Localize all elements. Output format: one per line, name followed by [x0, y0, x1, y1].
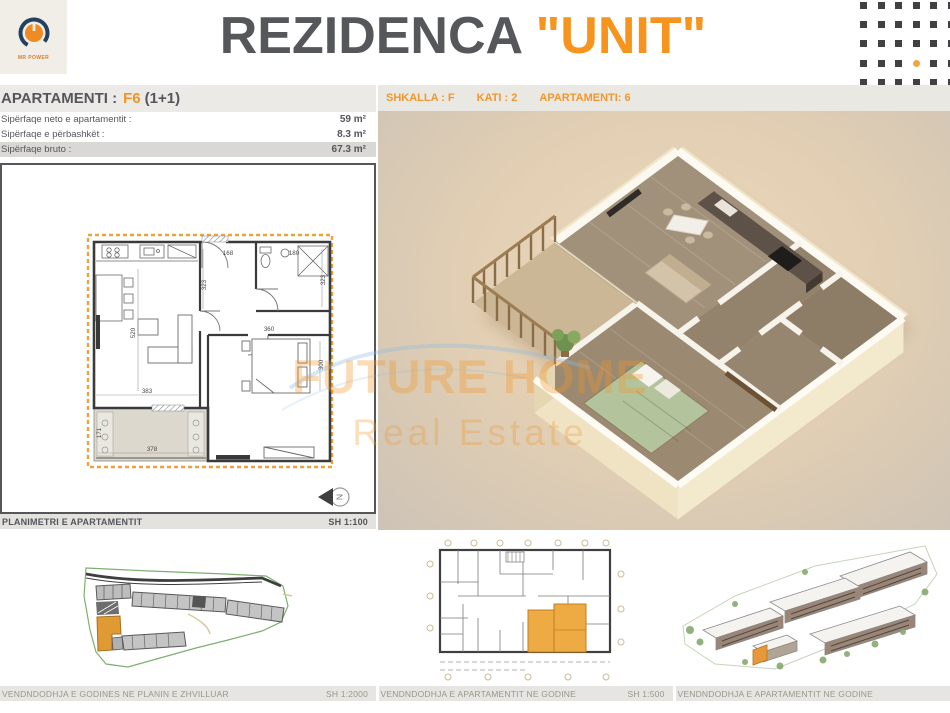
plan-caption-text: PLANIMETRI E APARTAMENTIT — [2, 517, 142, 527]
stat-label: Sipërfaqe bruto : — [1, 144, 71, 155]
dot — [895, 2, 902, 9]
dot — [860, 21, 867, 28]
dot — [930, 60, 937, 67]
kati-label: KATI : 2 — [477, 92, 518, 104]
complex-axonometric-drawing — [675, 534, 950, 686]
apartment-type: (1+1) — [145, 90, 180, 107]
apartamenti-label: APARTAMENTI: 6 — [539, 92, 630, 104]
building-plan-drawing — [378, 534, 672, 686]
dots-decoration — [860, 2, 950, 98]
stat-label: Sipërfaqe e përbashkët : — [1, 129, 105, 140]
title-accent: "UNIT" — [536, 7, 707, 65]
dot — [913, 2, 920, 9]
brochure-page: MR POWER REZIDENCA "UNIT" APARTAMENTI : … — [0, 0, 950, 713]
site-plan-drawing — [0, 534, 376, 686]
highlighted-unit — [753, 645, 767, 665]
caption-text: VENDNDODHJA E GODINES NE PLANIN E ZHVILL… — [2, 689, 229, 699]
dining-set — [96, 275, 133, 321]
svg-text:323: 323 — [201, 279, 208, 290]
living-furniture — [96, 315, 192, 363]
stat-row-perbashket: Sipërfaqe e përbashkët : 8.3 m² — [0, 127, 376, 142]
entry-mat — [202, 236, 228, 242]
caption-building-plan: VENDNDODHJA E APARTAMENTIT NE GODINE SH … — [379, 686, 673, 701]
svg-text:360: 360 — [264, 326, 275, 333]
highlighted-apartment — [554, 604, 586, 652]
caption-text: VENDNDODHJA E APARTAMENTIT NE GODINE — [678, 689, 874, 699]
svg-text:171: 171 — [96, 427, 103, 438]
apartment-3d-render — [378, 111, 950, 530]
caption-scale: SH 1:500 — [627, 689, 664, 699]
stat-value: 59 m² — [340, 114, 366, 125]
apartment-header: APARTAMENTI : F6 (1+1) — [0, 85, 376, 112]
floor-plan-drawing: 383 520 323 168 180 323 360 300 378 171 … — [2, 165, 374, 512]
accent-dot — [913, 60, 920, 67]
dot — [913, 21, 920, 28]
shkalla-label: SHKALLA : F — [386, 92, 455, 104]
dot — [930, 21, 937, 28]
floor-info-bar: SHKALLA : F KATI : 2 APARTAMENTI: 6 — [378, 85, 950, 111]
apartment-label: APARTAMENTI : — [1, 90, 117, 107]
dot — [860, 40, 867, 47]
dot — [860, 2, 867, 9]
dot — [895, 40, 902, 47]
dot — [930, 40, 937, 47]
stat-row-neto: Sipërfaqe neto e apartamentit : 59 m² — [0, 112, 376, 127]
svg-text:520: 520 — [130, 327, 137, 338]
svg-text:300: 300 — [318, 359, 325, 370]
title-main: REZIDENCA — [220, 7, 521, 65]
svg-text:323: 323 — [320, 274, 327, 285]
stat-value: 67.3 m² — [332, 144, 366, 155]
dot — [878, 21, 885, 28]
caption-scale: SH 1:2000 — [326, 689, 368, 699]
highlighted-apartment — [528, 610, 554, 652]
stat-row-bruto: Sipërfaqe bruto : 67.3 m² — [0, 142, 376, 157]
dot — [878, 60, 885, 67]
stat-label: Sipërfaqe neto e apartamentit : — [1, 114, 131, 125]
svg-text:180: 180 — [289, 250, 300, 257]
plan-caption-bar: PLANIMETRI E APARTAMENTIT SH 1:100 — [0, 514, 376, 529]
dot — [878, 40, 885, 47]
svg-text:168: 168 — [223, 250, 234, 257]
north-arrow-icon: N — [318, 488, 349, 506]
apartment-code: F6 — [123, 90, 141, 107]
svg-text:383: 383 — [142, 388, 153, 395]
dot — [895, 60, 902, 67]
render-3d-area — [378, 111, 950, 530]
caption-site-plan: VENDNDODHJA E GODINES NE PLANIN E ZHVILL… — [0, 686, 376, 701]
caption-complex-view: VENDNDODHJA E APARTAMENTIT NE GODINE — [676, 686, 950, 701]
page-title: REZIDENCA "UNIT" — [0, 6, 938, 66]
plan-scale: SH 1:100 — [328, 517, 368, 527]
dot — [930, 2, 937, 9]
stat-value: 8.3 m² — [337, 129, 366, 140]
caption-text: VENDNDODHJA E APARTAMENTIT NE GODINE — [381, 689, 577, 699]
dot — [895, 21, 902, 28]
dot — [913, 40, 920, 47]
dot — [878, 2, 885, 9]
svg-text:N: N — [334, 494, 344, 500]
bedroom-furniture — [216, 339, 314, 460]
floor-plan-panel: 383 520 323 168 180 323 360 300 378 171 … — [0, 163, 376, 514]
svg-text:378: 378 — [147, 446, 158, 453]
kitchen-fixtures — [96, 245, 198, 261]
dot — [860, 60, 867, 67]
